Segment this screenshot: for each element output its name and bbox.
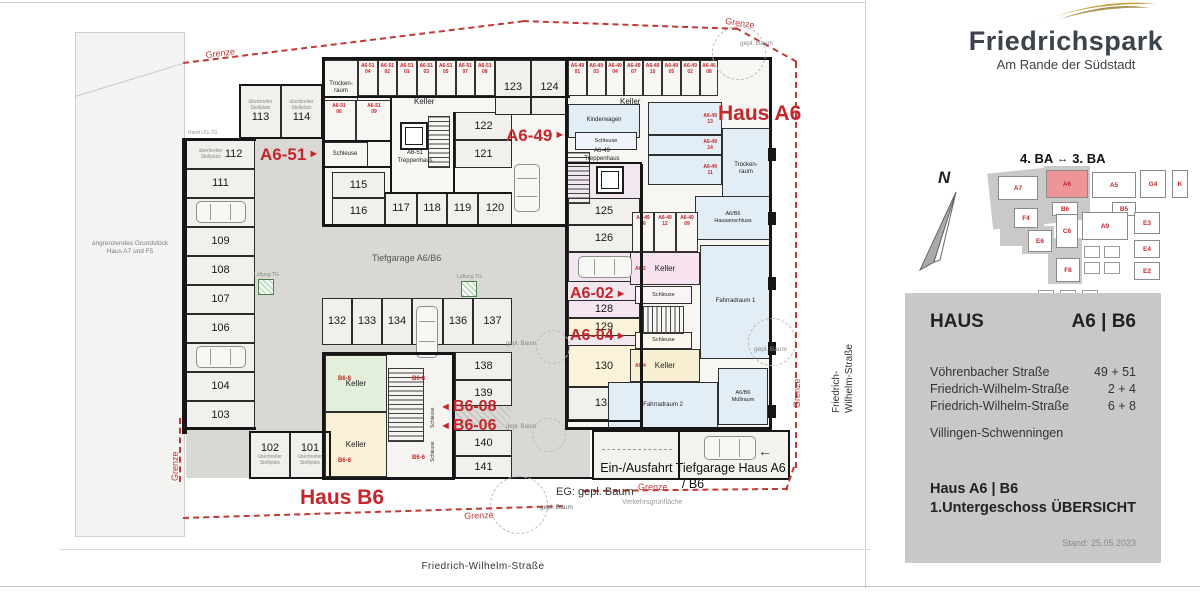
- planned-tree-icon: [536, 330, 570, 364]
- plan-text: gepl. Baum: [754, 346, 787, 354]
- parking-stall-138: 138: [455, 352, 512, 380]
- parking-stall-104: 104: [186, 372, 255, 401]
- stall-number: 141: [474, 462, 492, 473]
- panel-footer-haus: Haus A6 | B6: [930, 481, 1018, 497]
- plan-text: Haus B6: [300, 485, 384, 511]
- key-map-building-E3: E3: [1134, 212, 1160, 234]
- panel-footer-floor: 1.Untergeschoss: [930, 500, 1047, 516]
- panel-city: Villingen-Schwenningen: [930, 426, 1063, 440]
- key-map-building-G4: G4: [1140, 170, 1166, 198]
- plan-text: gepl. Baum: [506, 424, 536, 432]
- key-map-building-F8: F8: [1056, 258, 1080, 282]
- key-map-building-C6: C6: [1056, 214, 1078, 248]
- plan-text: B6-6: [412, 455, 425, 463]
- plan-text: Grenze: [792, 378, 803, 408]
- panel-haus-value: A6 | B6: [1072, 311, 1136, 333]
- plan-text: B6-8: [338, 376, 351, 384]
- key-map-block: [1104, 246, 1120, 258]
- divider-line: [0, 586, 1200, 587]
- unit-pointer-label: B6-08: [453, 399, 497, 415]
- stall-number: 104: [211, 381, 229, 392]
- key-map-building-A9: A9: [1082, 212, 1128, 240]
- divider-line: [60, 549, 870, 550]
- key-map-building-K: K: [1172, 170, 1188, 198]
- plan-text: B6-8: [412, 376, 425, 384]
- stall-number: 138: [474, 361, 492, 372]
- key-map-building-A5: A5: [1092, 172, 1136, 198]
- arrow-left-icon: ◄: [440, 421, 451, 432]
- plan-text: gepl. Baum: [540, 504, 573, 512]
- unit-pointer-label: B6-06: [453, 418, 497, 434]
- stall-number: 140: [474, 438, 492, 449]
- car-icon: [196, 346, 246, 368]
- plan-text: EG: gepl. Baum: [556, 486, 634, 500]
- panel-addresses: Vöhrenbacher Straße 49 + 51 Friedrich-Wi…: [930, 365, 1136, 416]
- unit-pointer-B6-08: ◄B6-08: [440, 399, 496, 415]
- parking-stall-103: 103: [186, 401, 255, 430]
- info-panel: HAUS A6 | B6 Vöhrenbacher Straße 49 + 51…: [905, 293, 1161, 563]
- plan-text: Grenze: [170, 451, 181, 481]
- key-map-building-E4: E4: [1134, 240, 1160, 258]
- plan-text: Schleuse: [430, 441, 436, 462]
- key-map-block: [1084, 246, 1100, 258]
- planned-tree-icon: [532, 418, 566, 452]
- panel-haus-label: HAUS: [930, 311, 984, 333]
- unit-pointer-label: A6-04: [570, 328, 614, 344]
- plan-text: Friedrich-Wilhelm-Straße: [831, 339, 856, 413]
- key-map-building-A6: A6: [1046, 170, 1088, 198]
- parking-stall-141: 141: [455, 456, 512, 478]
- plan-text: ←: [758, 443, 772, 461]
- key-map-block: [1104, 262, 1120, 274]
- key-map-building-E2: E2: [1134, 262, 1160, 280]
- floorplan-page: überbreiter Stellplatz113überbreiter Ste…: [0, 0, 1200, 600]
- address-row: Friedrich-Wilhelm-Straße 6 + 8: [930, 399, 1136, 413]
- plan-text: Verkehrsgrünfläche: [622, 499, 682, 508]
- key-map-building-E6: E6: [1028, 230, 1052, 252]
- key-map-buildings: A7A6B6A5B5G4KF4E6C6A9E3F8E4E2: [0, 0, 1200, 330]
- stall-number: 103: [211, 410, 229, 421]
- address-row: Friedrich-Wilhelm-Straße 2 + 4: [930, 382, 1136, 396]
- key-map-building-A7: A7: [998, 176, 1038, 200]
- plan-text: gepl. Baum: [506, 341, 536, 349]
- stall-number: 139: [474, 388, 492, 399]
- wall-segment: [182, 427, 256, 430]
- arrow-right-icon: ►: [616, 331, 627, 342]
- plan-text: Friedrich-Wilhelm-Straße: [398, 561, 568, 574]
- plan-text: B6-6: [338, 458, 351, 466]
- divider-line: [602, 449, 672, 450]
- arrow-left-icon: ◄: [440, 402, 451, 413]
- panel-footer-uebersicht: ÜBERSICHT: [1051, 500, 1136, 516]
- stall-101-102-walls: [249, 431, 331, 479]
- address-row: Vöhrenbacher Straße 49 + 51: [930, 365, 1136, 379]
- plan-text: Grenze: [464, 510, 494, 522]
- key-map-block: [1084, 262, 1100, 274]
- unit-pointer-B6-06: ◄B6-06: [440, 418, 496, 434]
- panel-stand-date: Stand: 25.05.2023: [1062, 538, 1136, 548]
- plan-text: Schleuse: [430, 407, 436, 428]
- key-map-building-F4: F4: [1014, 208, 1038, 228]
- unit-pointer-A6-04: A6-04►: [570, 328, 626, 344]
